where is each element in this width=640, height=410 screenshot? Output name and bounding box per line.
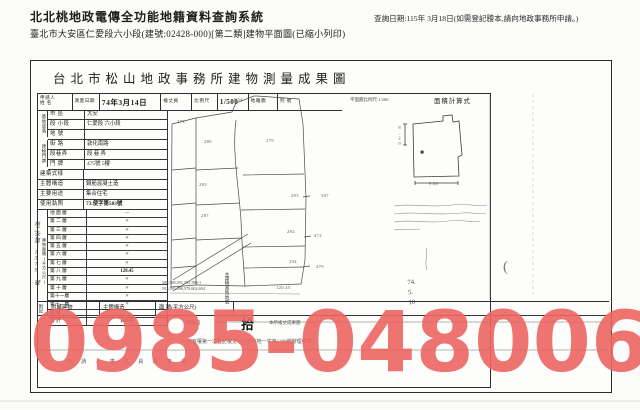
handwritten-calc-lines bbox=[394, 204, 487, 270]
floor-plan-sketch bbox=[403, 115, 462, 185]
phone-watermark: 0985-048006 bbox=[30, 296, 612, 388]
scanned-query-result-page: 北北桃地政電傳全功能地籍資料查詢系統 查詢日期:115年 3月18日(如需登記謄… bbox=[0, 0, 640, 410]
